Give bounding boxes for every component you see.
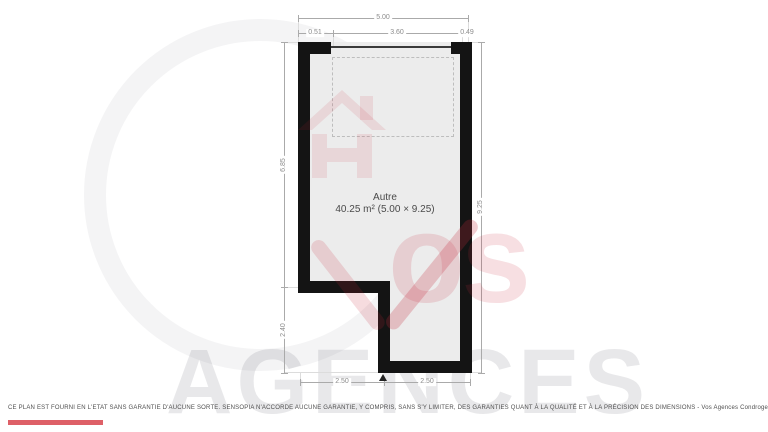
dimension-label-left-lower: 2.40 bbox=[280, 321, 288, 339]
dimension-label-bottom-right: 2.50 bbox=[418, 378, 436, 386]
dimension-label-top-total: 5.00 bbox=[374, 14, 392, 22]
wall-bottom bbox=[378, 361, 472, 373]
dimension-line-top-segments bbox=[298, 33, 472, 34]
dimension-label-bottom-left: 2.50 bbox=[333, 378, 351, 386]
watermark-house-icon bbox=[298, 84, 386, 184]
wall-opening-top bbox=[331, 46, 451, 48]
disclaimer-text: CE PLAN EST FOURNI EN L'ETAT SANS GARANT… bbox=[8, 405, 768, 411]
floor-plan-page: AGENCES Autre 40.25 m² (5.00 × 9.25) os bbox=[0, 0, 768, 432]
brand-red-bar bbox=[8, 420, 103, 425]
watermark-script-text: os bbox=[388, 196, 527, 322]
wall-top-left-corner bbox=[298, 42, 331, 54]
step-arrow-marker bbox=[379, 374, 387, 381]
dimension-label-top-mid: 3.60 bbox=[388, 29, 406, 37]
extension-line bbox=[284, 372, 378, 373]
dimension-label-left-upper: 6.85 bbox=[280, 156, 288, 174]
dimension-label-top-right: 0.49 bbox=[458, 29, 476, 37]
dimension-line-bottom bbox=[300, 382, 470, 383]
dimension-label-top-left: 0.51 bbox=[306, 29, 324, 37]
